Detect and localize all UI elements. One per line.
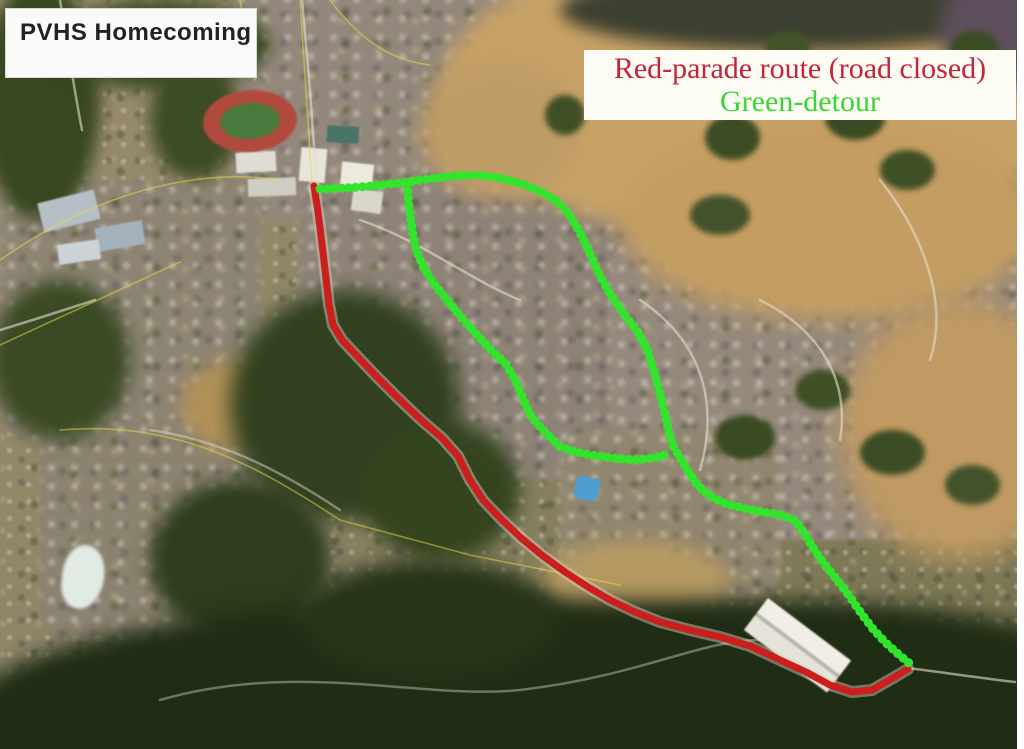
parade-route-red <box>314 186 908 692</box>
parade-route-red-road-underlay <box>314 186 908 692</box>
map-title-box: PVHS Homecoming <box>5 8 257 78</box>
legend-parade-route: Red-parade route (road closed) <box>584 52 1016 86</box>
route-legend: Red-parade route (road closed) Green-det… <box>584 50 1016 120</box>
map-screenshot: PVHS Homecoming Red-parade route (road c… <box>0 0 1024 749</box>
map-title: PVHS Homecoming <box>20 19 256 47</box>
detour-route-green-main <box>320 175 909 663</box>
legend-detour-route: Green-detour <box>584 86 1016 118</box>
image-right-margin <box>1017 0 1024 749</box>
